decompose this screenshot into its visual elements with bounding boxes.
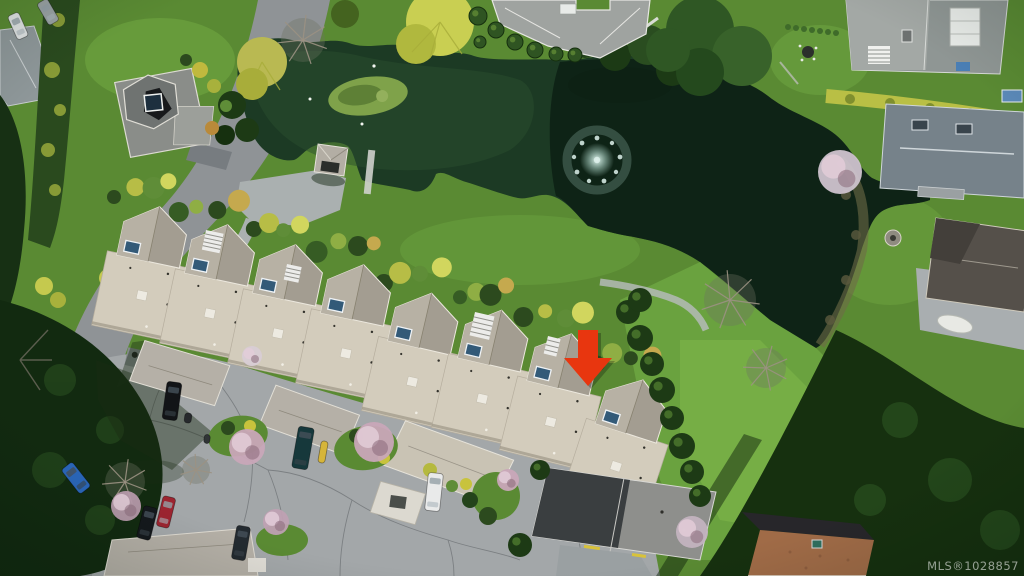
aerial-photo-canvas: MLS®1028857 [0, 0, 1024, 576]
watermark: MLS®1028857 [927, 559, 1019, 573]
vignette [0, 0, 1024, 576]
aerial-photo: MLS®1028857 [0, 0, 1024, 576]
